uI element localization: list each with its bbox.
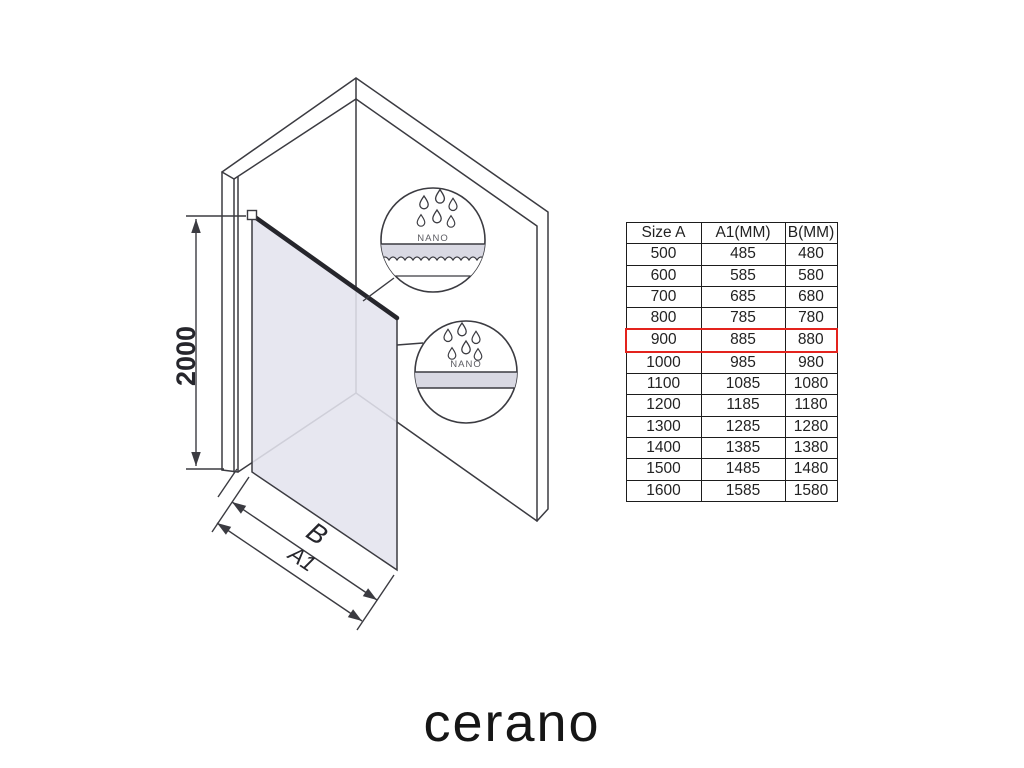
table-cell: 580 [785, 265, 837, 286]
table-cell: 700 [626, 286, 701, 307]
nano-callout-bottom: NANO [413, 321, 521, 423]
page: 2000 B A1 [0, 0, 1024, 768]
dim-line-a1 [217, 523, 362, 621]
table-cell: 1585 [701, 480, 785, 501]
table-cell: 1485 [701, 459, 785, 480]
table-row: 120011851180 [626, 395, 837, 416]
table-cell: 1500 [626, 459, 701, 480]
shower-panel-diagram: 2000 B A1 [0, 0, 1024, 768]
table-cell: 785 [701, 308, 785, 330]
nano-label-bottom: NANO [450, 359, 481, 370]
dim-height-label: 2000 [171, 326, 201, 386]
table-cell: 485 [701, 244, 785, 265]
table-cell: 900 [626, 329, 701, 351]
table-cell: 500 [626, 244, 701, 265]
table-cell: 1600 [626, 480, 701, 501]
wall-profile-mount [248, 211, 257, 220]
table-cell: 585 [701, 265, 785, 286]
wavy-underside [381, 257, 485, 276]
table-cell: 1085 [701, 374, 785, 395]
header-size-a: Size A [626, 223, 701, 244]
table-cell: 1300 [626, 416, 701, 437]
table-cell: 800 [626, 308, 701, 330]
table-cell: 1000 [626, 352, 701, 374]
table-row: 150014851480 [626, 459, 837, 480]
table-row: 160015851580 [626, 480, 837, 501]
table-row: 140013851380 [626, 437, 837, 458]
table-cell: 1080 [785, 374, 837, 395]
table-cell: 1285 [701, 416, 785, 437]
brand-logo: cerano [0, 692, 1024, 754]
glass-panel [248, 211, 398, 571]
table-row: 700685680 [626, 286, 837, 307]
table-cell: 1380 [785, 437, 837, 458]
header-a1-mm: A1(MM) [701, 223, 785, 244]
table-cell: 780 [785, 308, 837, 330]
table-cell: 985 [701, 352, 785, 374]
table-cell: 880 [785, 329, 837, 351]
size-table: Size A A1(MM) B(MM) 50048548060058558070… [625, 222, 838, 502]
table-cell: 1280 [785, 416, 837, 437]
table-cell: 480 [785, 244, 837, 265]
table-cell: 1200 [626, 395, 701, 416]
table-row: 600585580 [626, 265, 837, 286]
table-cell: 1180 [785, 395, 837, 416]
table-cell: 685 [701, 286, 785, 307]
header-b-mm: B(MM) [785, 223, 837, 244]
table-cell: 1185 [701, 395, 785, 416]
table-cell: 1580 [785, 480, 837, 501]
table-cell: 1385 [701, 437, 785, 458]
wall-left-top-corner-edge [222, 172, 234, 179]
table-cell: 1400 [626, 437, 701, 458]
glass-section-band [413, 372, 521, 388]
table-row: 500485480 [626, 244, 837, 265]
table-cell: 1100 [626, 374, 701, 395]
dim-ext-near-profile [218, 469, 237, 497]
table-row: 130012851280 [626, 416, 837, 437]
table-cell: 980 [785, 352, 837, 374]
nano-label-top: NANO [417, 233, 448, 244]
table-cell: 600 [626, 265, 701, 286]
leader-top-callout [363, 278, 394, 301]
table-row: 800785780 [626, 308, 837, 330]
table-body: 5004854806005855807006856808007857809008… [626, 244, 837, 502]
table-row: 900885880 [626, 329, 837, 351]
nano-callout-top: NANO [379, 188, 489, 292]
table-cell: 1480 [785, 459, 837, 480]
table-row: 110010851080 [626, 374, 837, 395]
dim-ext-far [357, 575, 394, 630]
table-cell: 680 [785, 286, 837, 307]
leader-bottom-callout [397, 343, 423, 345]
table-cell: 885 [701, 329, 785, 351]
table-header-row: Size A A1(MM) B(MM) [626, 223, 837, 244]
table-row: 1000985980 [626, 352, 837, 374]
